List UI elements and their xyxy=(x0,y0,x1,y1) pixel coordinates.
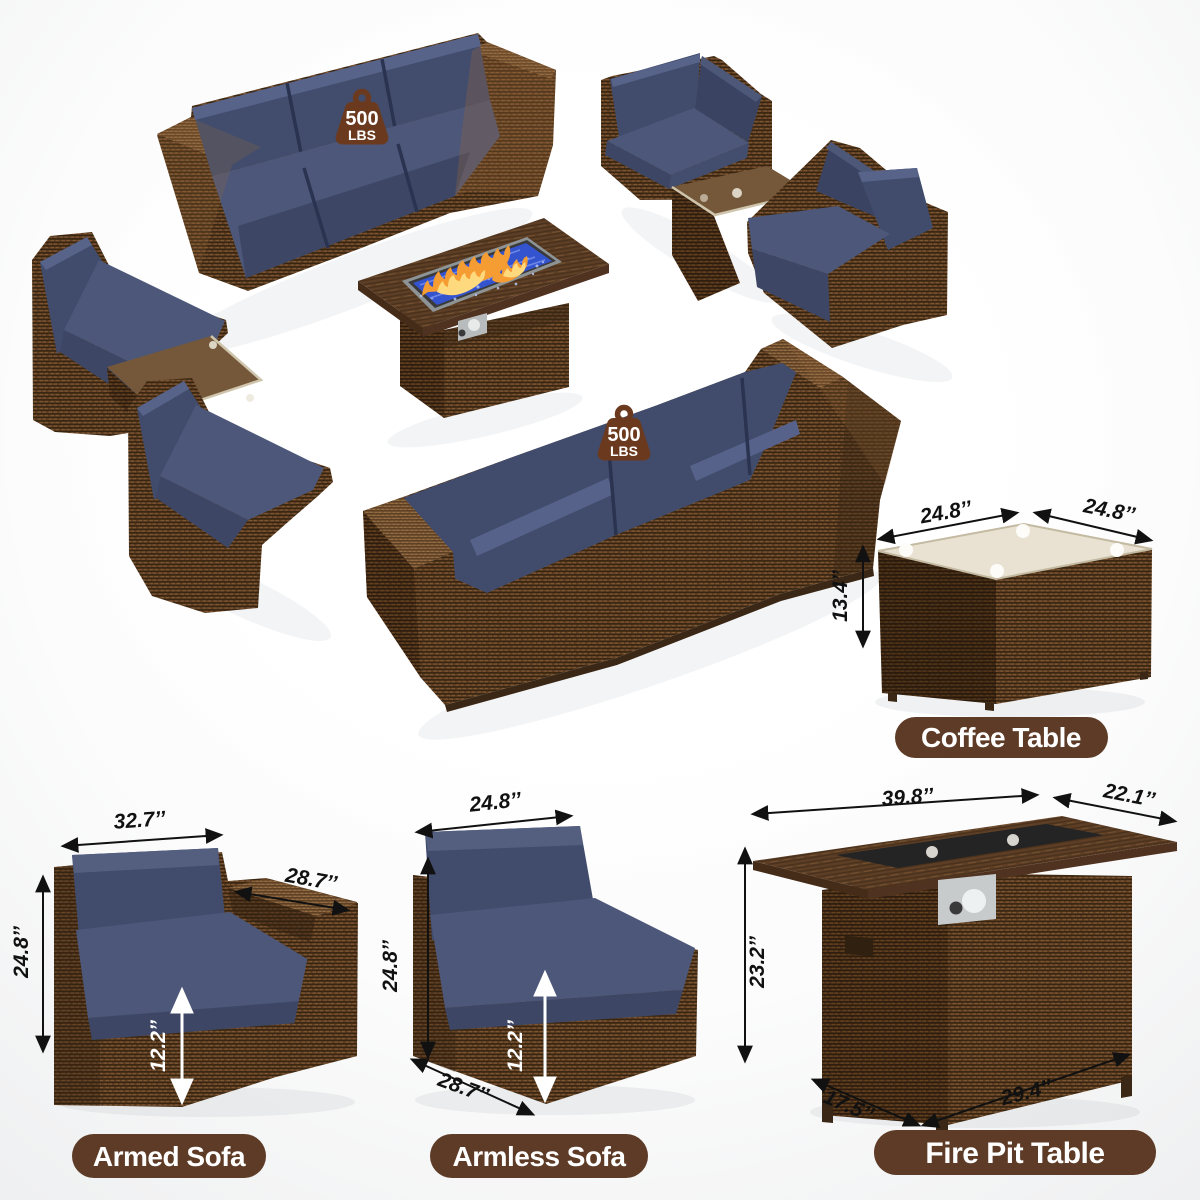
svg-text:24.8’’: 24.8’’ xyxy=(379,939,402,993)
svg-text:LBS: LBS xyxy=(610,443,638,459)
svg-text:Armless Sofa: Armless Sofa xyxy=(453,1141,627,1172)
svg-text:Fire Pit Table: Fire Pit Table xyxy=(925,1137,1104,1170)
svg-text:24.8’’: 24.8’’ xyxy=(10,925,33,979)
svg-text:12.2’’: 12.2’’ xyxy=(147,1019,170,1072)
svg-text:32.7’’: 32.7’’ xyxy=(113,807,167,834)
svg-text:23.2’’: 23.2’’ xyxy=(746,935,769,989)
svg-text:13.4’’: 13.4’’ xyxy=(829,569,852,622)
svg-text:LBS: LBS xyxy=(348,127,376,143)
svg-text:39.8’’: 39.8’’ xyxy=(881,784,935,811)
svg-text:Coffee Table: Coffee Table xyxy=(921,722,1081,753)
svg-text:12.2’’: 12.2’’ xyxy=(504,1019,527,1072)
svg-text:Armed Sofa: Armed Sofa xyxy=(93,1141,246,1172)
